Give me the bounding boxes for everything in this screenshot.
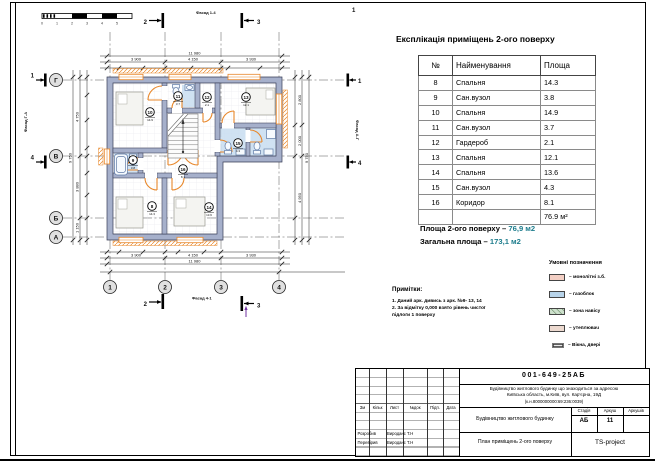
legend: Умовні позначення – монолітні з.б. – газ…	[549, 260, 645, 354]
svg-text:5: 5	[116, 22, 118, 26]
role-label: Розробив	[358, 431, 376, 436]
svg-text:4 150: 4 150	[188, 253, 199, 258]
role-name: Вироданс Т.Н	[387, 431, 413, 436]
company-name: TS-project	[571, 439, 649, 446]
svg-text:4: 4	[31, 156, 35, 162]
svg-text:8.1: 8.1	[181, 175, 186, 179]
table-total-row: 76.9 м²	[419, 210, 596, 225]
table-row: 16Коридор8.1	[419, 195, 596, 210]
svg-text:1 150: 1 150	[75, 222, 80, 233]
svg-text:4: 4	[358, 161, 362, 167]
svg-text:3: 3	[257, 20, 261, 26]
rev-col-lyst: Лист	[386, 405, 403, 410]
table-header-row: № Найменування Площа	[419, 56, 596, 76]
svg-text:4 950: 4 950	[297, 192, 302, 203]
svg-text:3 880: 3 880	[75, 181, 80, 192]
dimension-lines-bottom: 3 900 4 150 3 930 11 980	[100, 250, 345, 274]
rev-col-kilk: Кільк	[369, 405, 386, 410]
total-area-summary: Загальна площа – 173,1 м2	[420, 237, 521, 246]
svg-text:3: 3	[219, 284, 223, 291]
svg-text:3: 3	[86, 22, 88, 26]
svg-text:13: 13	[243, 95, 249, 100]
svg-text:2 800: 2 800	[297, 94, 302, 105]
legend-title: Умовні позначення	[549, 260, 645, 266]
svg-text:Г: Г	[54, 77, 58, 84]
svg-text:Фасад 4-1: Фасад 4-1	[192, 296, 212, 301]
dimension-lines-top: 11 980 3 900 4 150 3 930	[100, 51, 290, 71]
svg-text:0: 0	[41, 22, 43, 26]
legend-item: – Вікна, двері	[549, 337, 645, 354]
legend-item: – монолітні з.б.	[549, 269, 645, 286]
explication-title: Експлікація приміщень 2-ого поверху	[396, 34, 555, 44]
svg-text:14.9: 14.9	[147, 118, 153, 122]
svg-text:1: 1	[358, 79, 362, 85]
svg-text:1: 1	[352, 8, 356, 14]
role-label: Перевірив	[358, 440, 378, 445]
svg-text:2: 2	[144, 20, 148, 26]
svg-text:4 750: 4 750	[75, 111, 80, 122]
svg-text:2 000: 2 000	[297, 135, 302, 146]
pink-swatch-icon	[549, 325, 565, 332]
svg-text:9 750: 9 750	[304, 152, 309, 163]
sheet-number: 11	[597, 418, 623, 424]
table-row: 10Спальня14.9	[419, 105, 596, 120]
svg-text:16: 16	[180, 167, 186, 172]
svg-text:Фасад Г-А: Фасад Г-А	[23, 112, 28, 132]
svg-text:2: 2	[71, 22, 73, 26]
svg-text:3.8: 3.8	[131, 166, 136, 170]
note-line: підлоги 1 поверху	[392, 312, 552, 319]
title-block: Зм Кільк Лист №док Підп. Дата Розробив В…	[355, 368, 650, 457]
stairs	[168, 114, 198, 158]
address-line: Київська область, м.Київ, вул. Кар'єрна,…	[459, 392, 649, 397]
floor-plan: 11 980 3 900 4 150 3 930 3 900 4 150 3 9…	[10, 2, 390, 360]
brick-swatch-icon	[549, 274, 565, 281]
table-row: 9Сан.вузол3.8	[419, 90, 596, 105]
svg-text:12.1: 12.1	[243, 103, 249, 107]
window-swatch-icon	[552, 343, 564, 348]
object-name: Будівництво житлового будинку	[459, 416, 571, 422]
dimension-lines-right: 2 800 2 000 4 950 9 750	[293, 70, 311, 245]
legend-item: – газоблок	[549, 286, 645, 303]
svg-text:3.7: 3.7	[176, 102, 181, 106]
svg-text:8: 8	[151, 204, 154, 209]
floor-area-value: 76,9 м2	[508, 224, 535, 233]
svg-text:14.3: 14.3	[149, 212, 155, 216]
note-line: 2. За відмітку 0,000 взято рівень чистої	[392, 305, 552, 312]
svg-text:1: 1	[108, 284, 112, 291]
explication-table: № Найменування Площа 8Спальня14.3 9Сан.в…	[418, 55, 596, 225]
sheet-label: Аркуш	[597, 408, 623, 413]
dimension-lines-left: 9 750 4 750 3 880 1 150	[68, 70, 90, 245]
notes-title: Примітки:	[392, 286, 552, 293]
address-line: Будівництво житлового будинку що знаходи…	[459, 386, 649, 391]
svg-text:9 750: 9 750	[68, 152, 73, 163]
svg-text:Фасад 1-4: Фасад 1-4	[196, 10, 216, 15]
svg-text:1: 1	[31, 74, 35, 80]
svg-text:3 930: 3 930	[246, 253, 257, 258]
table-row: 12Гардероб2.1	[419, 135, 596, 150]
col-header-area: Площа	[541, 56, 596, 76]
cadastre-number: (к.н.8000000000:69:236:0039)	[459, 399, 649, 404]
svg-text:2.1: 2.1	[205, 103, 210, 107]
sheet-bottom-edge	[0, 459, 655, 461]
col-header-number: №	[419, 56, 453, 76]
rev-col-data: Дата	[443, 405, 459, 410]
svg-text:11 980: 11 980	[189, 51, 202, 56]
sheets-label: Аркушів	[623, 408, 649, 413]
floor-area-label: Площа 2-ого поверху –	[420, 224, 506, 233]
total-area-value: 173,1 м2	[490, 237, 521, 246]
svg-text:В: В	[54, 153, 59, 160]
svg-text:15: 15	[235, 141, 241, 146]
svg-text:4 150: 4 150	[188, 57, 199, 62]
stage-label: Стадія	[571, 408, 597, 413]
rev-col-doc: №док	[403, 405, 427, 410]
note-line: 1. Даний арк. дивись з арк. №9- 13, 14	[392, 298, 552, 305]
svg-text:14: 14	[206, 205, 212, 210]
svg-text:3 900: 3 900	[131, 253, 142, 258]
svg-text:4: 4	[277, 284, 281, 291]
purple-reference-marks: 1	[244, 8, 356, 317]
svg-text:1: 1	[56, 22, 58, 26]
svg-text:2: 2	[144, 302, 148, 308]
svg-text:2: 2	[163, 284, 167, 291]
table-row: 11Сан.вузол3.7	[419, 120, 596, 135]
rev-col-pidp: Підп.	[427, 405, 443, 410]
svg-text:11 980: 11 980	[189, 259, 202, 264]
svg-text:10: 10	[147, 110, 153, 115]
legend-item: – утеплювач	[549, 320, 645, 337]
svg-text:12: 12	[204, 95, 210, 100]
table-row: 15Сан.вузол4.3	[419, 180, 596, 195]
legend-item: – зона навісу	[549, 303, 645, 320]
scale-bar: 0 1 2 3 4 5	[41, 14, 132, 26]
building: 8 14.3 9 3.8 10 14.9 11 3.7 12 2.1	[99, 69, 288, 246]
svg-text:9: 9	[132, 158, 135, 163]
svg-text:4: 4	[101, 22, 103, 26]
svg-text:А: А	[54, 234, 59, 241]
svg-text:3: 3	[257, 304, 261, 310]
table-row: 14Спальня13.6	[419, 165, 596, 180]
svg-text:3 900: 3 900	[131, 57, 142, 62]
svg-text:3 930: 3 930	[246, 57, 257, 62]
svg-text:Б: Б	[54, 215, 59, 222]
svg-text:13.6: 13.6	[206, 213, 212, 217]
svg-text:4.3: 4.3	[236, 149, 241, 153]
role-name: Вироданс Т.Н	[387, 440, 413, 445]
drawing-sheet: 11 980 3 900 4 150 3 930 3 900 4 150 3 9…	[0, 0, 655, 463]
svg-text:Фасад А-Г: Фасад А-Г	[355, 120, 360, 141]
table-row: 13Спальня12.1	[419, 150, 596, 165]
col-header-name: Найменування	[453, 56, 541, 76]
floor-area-summary: Площа 2-ого поверху – 76,9 м2	[420, 224, 535, 233]
stage-value: АБ	[571, 418, 597, 424]
drawing-title: План приміщень 2-ого поверху	[459, 439, 571, 445]
notes: Примітки: 1. Даний арк. дивись з арк. №9…	[392, 286, 552, 319]
total-area-label: Загальна площа –	[420, 237, 488, 246]
table-row: 8Спальня14.3	[419, 76, 596, 91]
rev-col-zm: Зм	[356, 405, 369, 410]
svg-text:11: 11	[176, 94, 181, 99]
document-code: 001-649-25АБ	[459, 372, 649, 379]
